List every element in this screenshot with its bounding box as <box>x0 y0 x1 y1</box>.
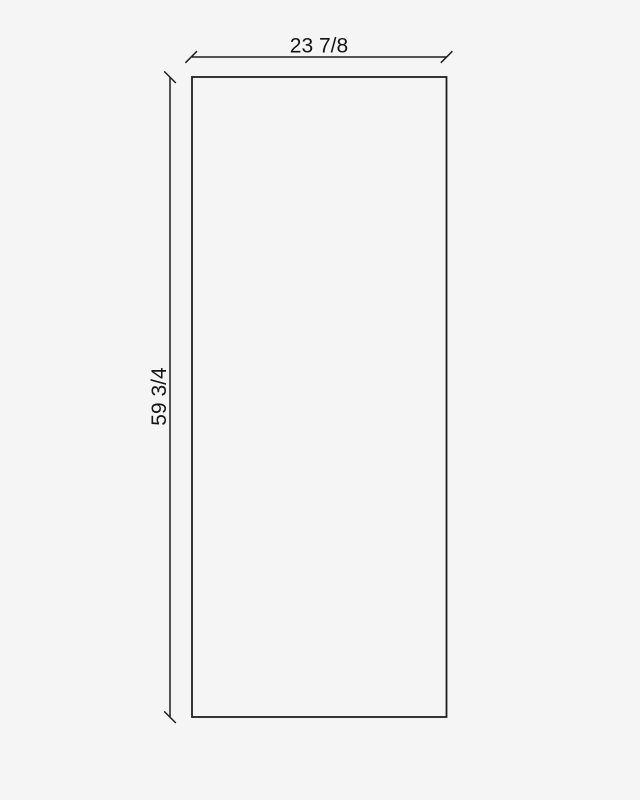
svg-text:59 3/4: 59 3/4 <box>148 367 171 426</box>
svg-text:23 7/8: 23 7/8 <box>290 35 348 58</box>
